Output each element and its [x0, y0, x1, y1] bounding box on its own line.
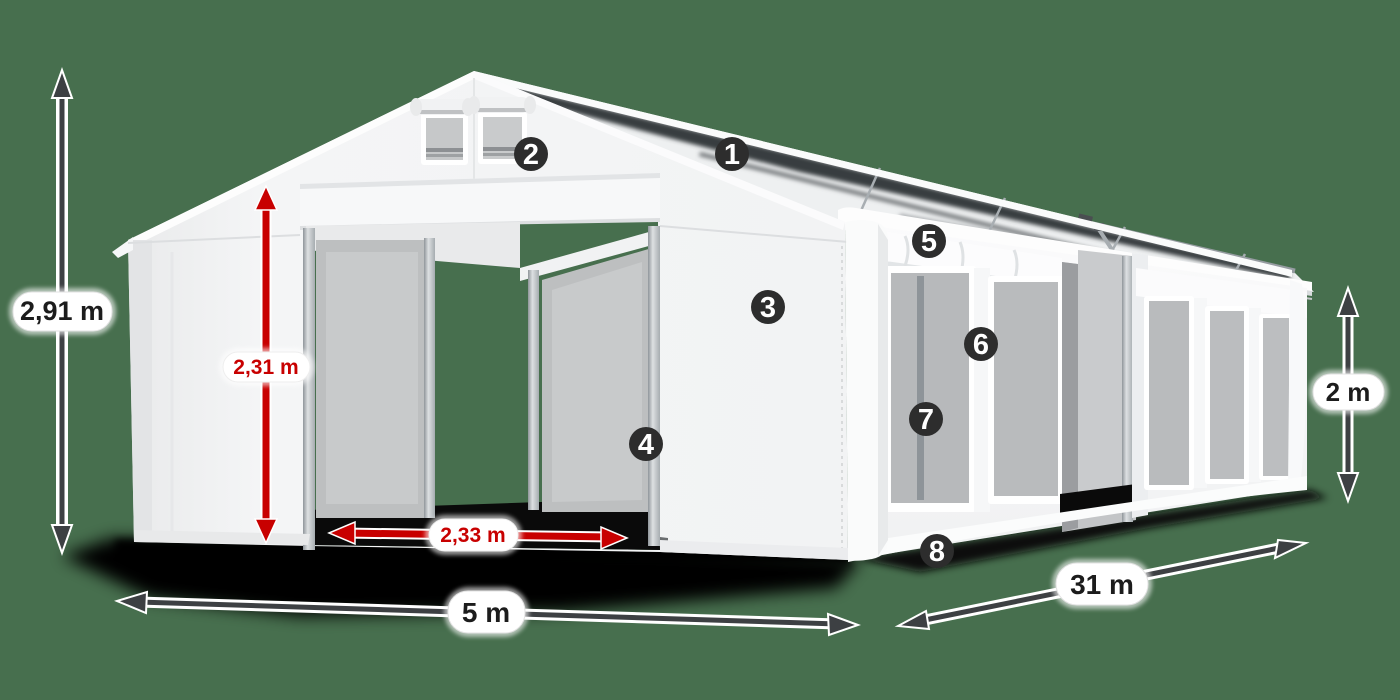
svg-text:2,91 m: 2,91 m — [20, 296, 104, 326]
svg-text:31 m: 31 m — [1070, 569, 1134, 600]
svg-text:2,33 m: 2,33 m — [440, 524, 505, 547]
svg-text:4: 4 — [638, 429, 654, 461]
svg-text:2 m: 2 m — [1326, 377, 1371, 407]
svg-text:3: 3 — [760, 292, 776, 324]
svg-text:2,31 m: 2,31 m — [233, 356, 298, 379]
svg-text:5: 5 — [921, 226, 937, 258]
svg-text:8: 8 — [929, 536, 945, 568]
svg-text:6: 6 — [973, 329, 989, 361]
svg-text:5 m: 5 m — [462, 597, 510, 628]
svg-text:2: 2 — [523, 139, 539, 171]
svg-text:7: 7 — [918, 404, 934, 436]
svg-text:1: 1 — [724, 139, 740, 171]
